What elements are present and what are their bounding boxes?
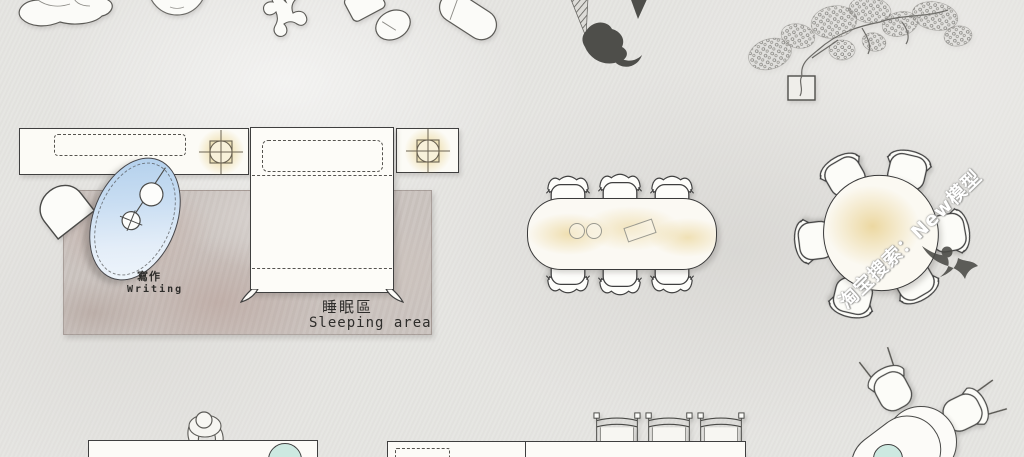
sleeping-label-zh: 睡眠區 (322, 296, 373, 317)
bed-foot-right (384, 289, 404, 303)
bed-fold-line (252, 268, 392, 269)
sculpted-figure (260, 0, 312, 42)
plate (569, 223, 585, 239)
plate (586, 223, 602, 239)
counter-divider (525, 442, 526, 457)
stone-stool (16, 0, 120, 33)
light-fixture-symbol (400, 123, 456, 179)
writing-label-en: Writing (127, 284, 183, 295)
sleeping-label-en: Sleeping area (309, 315, 432, 331)
bonsai-plant (742, 0, 980, 108)
counter-inset-dashed (395, 448, 450, 457)
capsule-stool (431, 0, 505, 52)
bed-foot-left (240, 289, 260, 303)
bed-pillow-dashed (262, 140, 383, 172)
writing-label-zh: 寫作 (137, 268, 161, 284)
round-ottoman (146, 0, 208, 17)
floor-plan-canvas: 寫作 Writing 睡眠區 Sleeping area 淘宝搜索：New模型 (0, 0, 1024, 457)
bed-sheet-line (252, 175, 392, 176)
light-fixture-symbol (193, 124, 249, 180)
kitchen-counter-middle (387, 441, 746, 457)
lamp-top-view (343, 0, 417, 45)
dining-table (527, 198, 717, 270)
hanging-chair-person-silhouette (556, 0, 660, 77)
